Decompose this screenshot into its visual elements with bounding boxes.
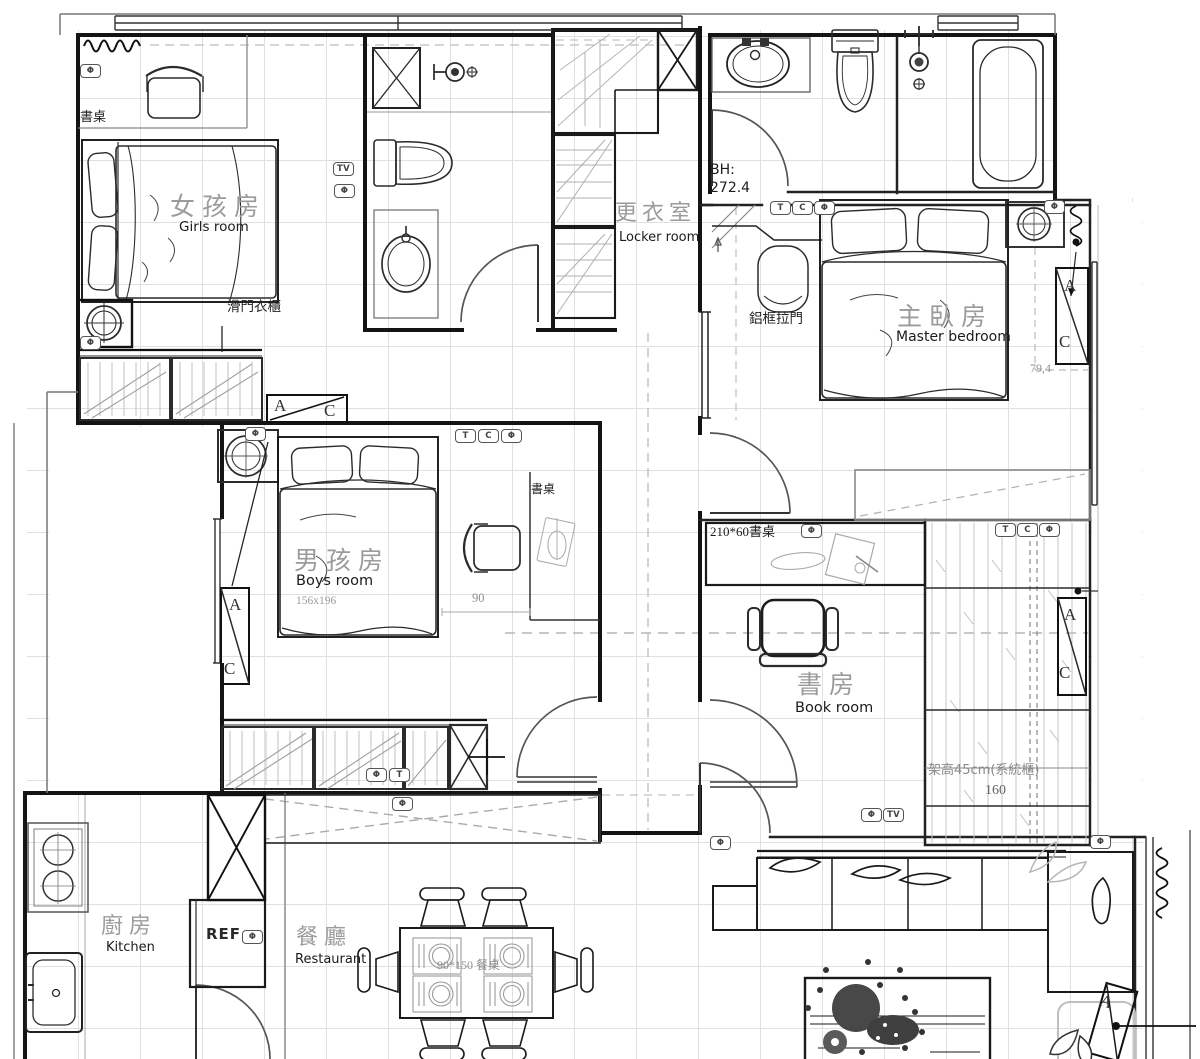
room-label-kitchen-en: Kitchen <box>106 941 155 954</box>
fridge-label: REF <box>206 927 241 942</box>
room-label-boys-zh: 男孩房 <box>294 548 390 573</box>
outlet-icon: Φ <box>334 184 355 198</box>
room-label-dining-en: Restaurant <box>295 953 366 966</box>
phone-outlet-icon: T <box>770 201 791 215</box>
beam-height-label: BH: <box>710 163 735 177</box>
room-label-girls-zh: 女孩房 <box>170 194 266 219</box>
phone-outlet-icon: T <box>455 429 476 443</box>
floor-grid <box>26 14 1143 1059</box>
outlet-icon: Φ <box>861 808 882 822</box>
platform-label: 架高45cm(系統櫃) <box>928 764 1040 777</box>
outlet-icon: Φ <box>392 797 413 811</box>
cable-outlet-icon: C <box>478 429 499 443</box>
ac-letter-c: C <box>1059 333 1070 350</box>
room-label-locker-en: Locker room <box>619 231 699 244</box>
ac-letter-a: A <box>1064 277 1076 294</box>
ac-letter-a: A <box>274 397 286 414</box>
curtain-icon <box>1157 848 1168 918</box>
outlet-icon: Φ <box>501 429 522 443</box>
ac-letter-c: C <box>324 402 335 419</box>
room-label-book-en: Book room <box>795 701 873 716</box>
floor-plan: 女孩房 Girls room 書桌 滑門衣櫃 更衣室 Locker room B… <box>0 0 1200 1059</box>
room-label-master-en: Master bedroom <box>896 330 1011 344</box>
phone-outlet-icon: T <box>389 768 410 782</box>
desk-label-girls: 書桌 <box>80 111 106 124</box>
outlet-icon: Φ <box>710 836 731 850</box>
room-label-master-zh: 主臥房 <box>897 304 993 329</box>
room-label-book-zh: 書房 <box>797 672 861 697</box>
cable-outlet-icon: C <box>792 201 813 215</box>
room-label-girls-en: Girls room <box>179 221 249 235</box>
bed-size-label: 156x196 <box>296 596 336 608</box>
ac-letter-c: C <box>1059 664 1070 681</box>
room-label-dining-zh: 餐廳 <box>296 927 352 949</box>
outlet-icon: Φ <box>245 427 266 441</box>
tv-outlet-icon: TV <box>333 162 354 176</box>
outlet-icon: Φ <box>801 524 822 538</box>
dining-table-label: 90*150 餐桌 <box>437 959 500 971</box>
tv-outlet-icon: TV <box>883 808 904 822</box>
room-label-kitchen-zh: 廚房 <box>101 916 157 938</box>
cable-outlet-icon: C <box>1017 523 1038 537</box>
book-desk-label: 210*60書桌 <box>710 525 775 538</box>
phone-outlet-icon: T <box>995 523 1016 537</box>
beam-height-value: 272.4 <box>710 181 750 195</box>
outlet-icon: Φ <box>366 768 387 782</box>
outlet-icon: Φ <box>1039 523 1060 537</box>
outlet-icon: Φ <box>242 930 263 944</box>
ac-letter-a: A <box>1064 606 1076 623</box>
room-label-locker-zh: 更衣室 <box>615 203 696 225</box>
dim-boys-desk: 90 <box>472 592 485 605</box>
ac-letter-c: C <box>224 660 235 677</box>
dim-master-side: 79,4 <box>1030 362 1051 374</box>
sliding-wardrobe-label: 滑門衣櫃 <box>227 301 281 315</box>
outlet-icon: Φ <box>1044 200 1065 214</box>
outlet-icon: Φ <box>80 336 101 350</box>
desk-label-boys: 書桌 <box>531 483 555 495</box>
aluminum-door-label: 鋁框拉門 <box>749 313 803 327</box>
outlet-icon: Φ <box>1090 835 1111 849</box>
room-label-boys-en: Boys room <box>296 574 373 589</box>
outlet-icon: Φ <box>80 64 101 78</box>
dim-platform: 160 <box>985 784 1006 798</box>
outlet-icon: Φ <box>814 201 835 215</box>
ac-letter-a: A <box>229 596 241 613</box>
